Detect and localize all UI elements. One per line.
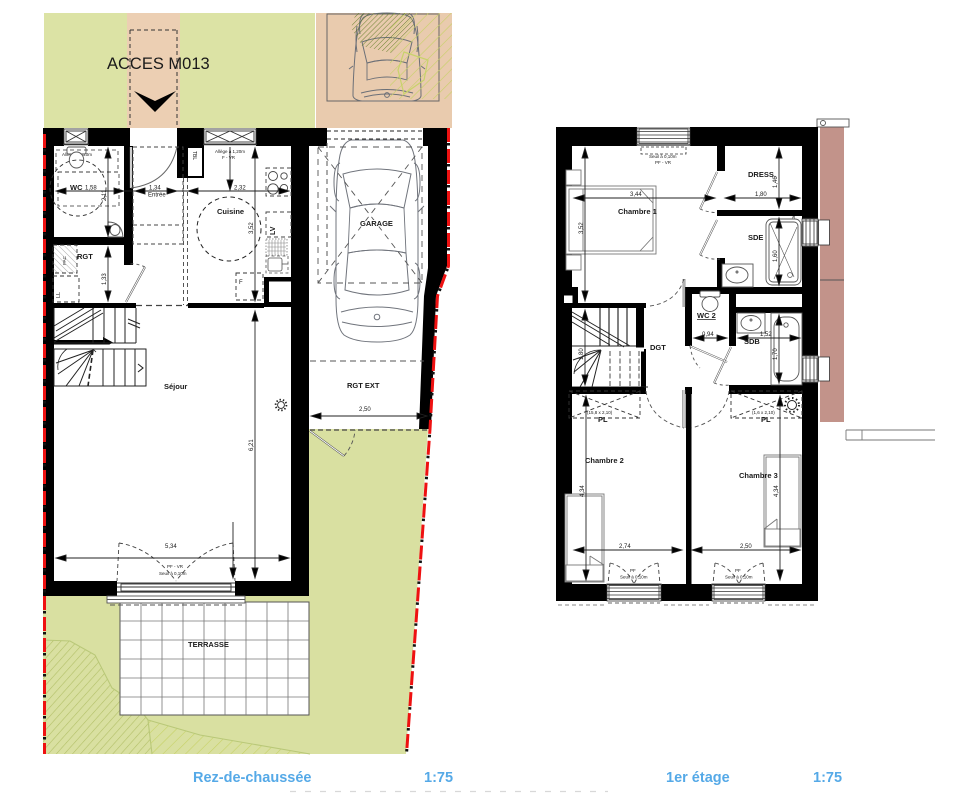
svg-text:2,11: 2,11 — [102, 189, 108, 201]
svg-text:PL: PL — [761, 415, 771, 424]
svg-text:Séjour: Séjour — [164, 382, 187, 391]
svg-text:DRESS.: DRESS. — [748, 170, 776, 179]
svg-text:ACCES M013: ACCES M013 — [107, 55, 210, 73]
svg-text:Chambre 2: Chambre 2 — [585, 456, 624, 465]
svg-text:WC 2: WC 2 — [697, 311, 716, 320]
svg-text:SDE: SDE — [748, 233, 763, 242]
svg-text:DGT: DGT — [650, 343, 666, 352]
svg-text:PF - VR: PF - VR — [655, 160, 672, 165]
svg-text:3,52: 3,52 — [579, 222, 585, 234]
svg-text:5,34: 5,34 — [165, 544, 177, 550]
svg-text:LV: LV — [270, 226, 277, 235]
svg-text:F: F — [239, 280, 243, 286]
svg-text:1,34: 1,34 — [149, 186, 161, 192]
svg-text:1,58: 1,58 — [85, 186, 97, 192]
svg-text:1,46: 1,46 — [773, 176, 779, 188]
svg-text:RGT: RGT — [77, 252, 93, 261]
svg-text:TBL: TBL — [191, 151, 197, 160]
svg-text:4,34: 4,34 — [580, 485, 586, 497]
svg-text:2,50: 2,50 — [359, 407, 371, 413]
svg-text:Cuisine: Cuisine — [217, 207, 244, 216]
svg-text:0,94: 0,94 — [702, 332, 714, 338]
svg-text:PL: PL — [598, 415, 608, 424]
svg-text:F - VR: F - VR — [222, 155, 236, 160]
svg-text:6,21: 6,21 — [249, 439, 255, 451]
svg-text:Seuil à 0,10m: Seuil à 0,10m — [620, 575, 648, 580]
svg-text:1,80: 1,80 — [755, 192, 767, 198]
svg-text:1er étage: 1er étage — [666, 770, 730, 786]
svg-text:1:75: 1:75 — [424, 770, 453, 786]
svg-text:PF: PF — [735, 568, 741, 573]
svg-text:1,33: 1,33 — [102, 273, 108, 285]
svg-text:Rez-de-chaussée: Rez-de-chaussée — [193, 770, 311, 786]
svg-text:TERRASSE: TERRASSE — [188, 640, 229, 649]
svg-text:4,34: 4,34 — [774, 485, 780, 497]
svg-text:2,32: 2,32 — [234, 186, 246, 192]
svg-text:Chambre 3: Chambre 3 — [739, 471, 778, 480]
svg-text:2,74: 2,74 — [619, 544, 631, 550]
svg-text:PF - VR: PF - VR — [167, 564, 184, 569]
svg-text:2,50: 2,50 — [740, 544, 752, 550]
svg-text:1,70: 1,70 — [773, 348, 779, 360]
svg-text:1,60: 1,60 — [773, 250, 779, 262]
svg-text:3,52: 3,52 — [249, 222, 255, 234]
svg-text:Entrée: Entrée — [148, 193, 166, 199]
svg-text:1,52: 1,52 — [760, 332, 772, 338]
svg-text:GARAGE: GARAGE — [360, 219, 393, 228]
svg-text:3,44: 3,44 — [630, 192, 642, 198]
svg-text:LL: LL — [56, 292, 62, 298]
svg-text:Chambre 1: Chambre 1 — [618, 207, 657, 216]
svg-text:RGT EXT: RGT EXT — [347, 381, 380, 390]
svg-text:1,80: 1,80 — [579, 348, 585, 360]
svg-text:PF: PF — [630, 568, 636, 573]
svg-text:Seuil à 0,10m: Seuil à 0,10m — [159, 571, 187, 576]
svg-text:1:75: 1:75 — [813, 770, 842, 786]
svg-text:Seuil à 0,10m: Seuil à 0,10m — [649, 154, 677, 159]
svg-text:PAC: PAC — [62, 255, 67, 265]
svg-text:Seuil à 0,10m: Seuil à 0,10m — [725, 575, 753, 580]
